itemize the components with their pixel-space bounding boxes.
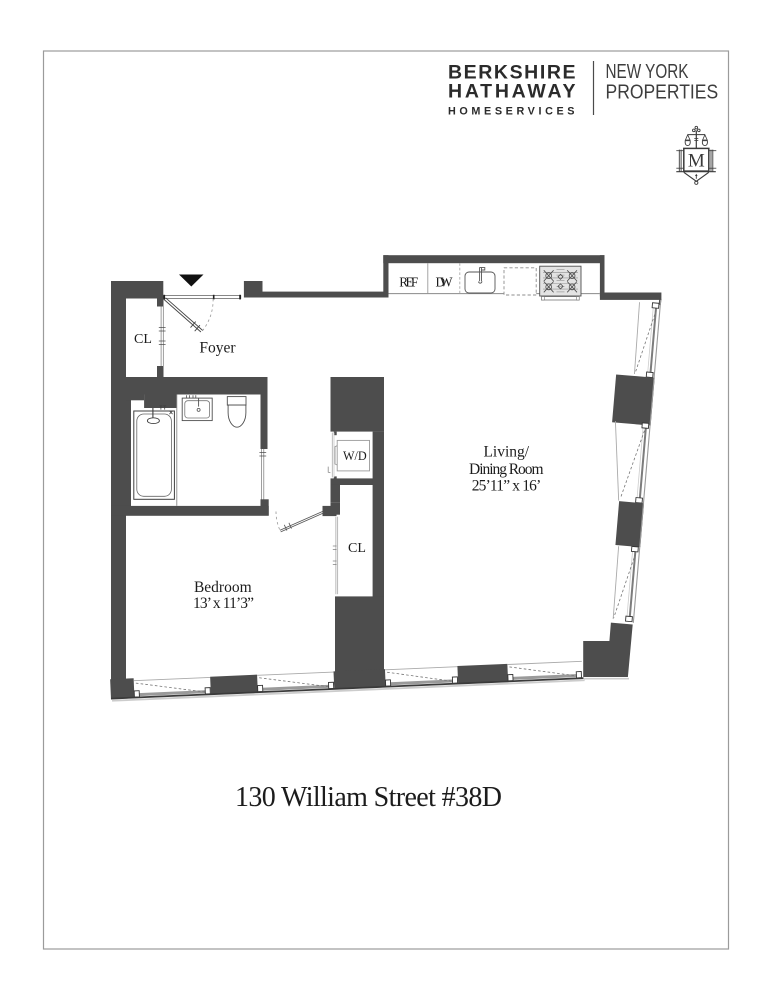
svg-text:CL: CL [134, 332, 152, 347]
svg-text:DW: DW [436, 275, 453, 290]
svg-text:25’11” x 16’: 25’11” x 16’ [472, 477, 542, 494]
svg-text:HOMESERVICES: HOMESERVICES [448, 106, 575, 118]
svg-text:CL: CL [348, 541, 366, 556]
svg-text:REF: REF [399, 275, 418, 290]
svg-text:Bedroom: Bedroom [194, 579, 252, 596]
svg-text:Foyer: Foyer [199, 340, 236, 357]
svg-text:Dining Room: Dining Room [469, 461, 544, 478]
svg-text:13’ x 11’3”: 13’ x 11’3” [193, 595, 254, 612]
svg-text:HATHAWAY: HATHAWAY [448, 81, 576, 103]
svg-text:Living/: Living/ [483, 443, 529, 460]
svg-text:130 William Street #38D: 130 William Street #38D [235, 782, 502, 813]
svg-text:M: M [688, 150, 705, 171]
svg-text:PROPERTIES: PROPERTIES [606, 80, 719, 103]
svg-text:W/D: W/D [343, 449, 367, 463]
